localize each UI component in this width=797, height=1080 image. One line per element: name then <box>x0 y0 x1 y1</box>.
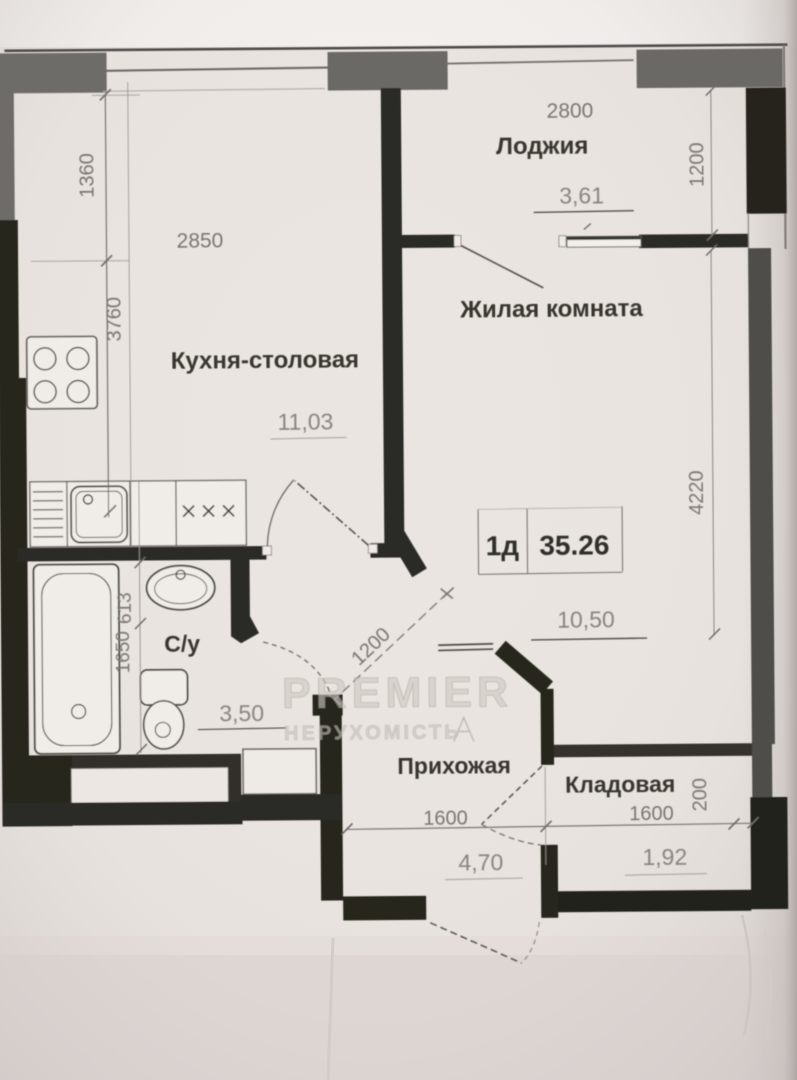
svg-text:2800: 2800 <box>547 99 594 122</box>
svg-text:4,70: 4,70 <box>458 849 503 875</box>
svg-text:11,03: 11,03 <box>277 409 333 435</box>
svg-text:1600: 1600 <box>423 807 468 829</box>
svg-text:1650: 1650 <box>113 631 134 673</box>
svg-text:Лоджия: Лоджия <box>496 133 588 161</box>
svg-text:3,50: 3,50 <box>219 700 264 726</box>
svg-text:Прихожая: Прихожая <box>397 752 511 779</box>
svg-text:10,50: 10,50 <box>557 606 615 632</box>
svg-text:4220: 4220 <box>686 470 708 515</box>
svg-text:1600: 1600 <box>629 803 674 825</box>
svg-text:3760: 3760 <box>103 297 125 342</box>
svg-text:1,92: 1,92 <box>642 844 687 870</box>
svg-text:Кладовая: Кладовая <box>565 771 675 798</box>
svg-text:2850: 2850 <box>177 229 224 252</box>
svg-text:200: 200 <box>689 778 711 812</box>
svg-text:1200: 1200 <box>686 142 708 187</box>
svg-text:PREMIER: PREMIER <box>282 668 513 718</box>
svg-text:613: 613 <box>115 592 136 624</box>
svg-text:НЕРУХОМІСТЬ: НЕРУХОМІСТЬ <box>284 722 462 745</box>
svg-text:С/у: С/у <box>164 631 200 657</box>
svg-text:3,61: 3,61 <box>559 182 604 208</box>
svg-text:1360: 1360 <box>76 153 98 198</box>
svg-text:1д: 1д <box>486 530 520 561</box>
svg-text:Кухня-столовая: Кухня-столовая <box>171 346 360 374</box>
svg-text:Жилая комната: Жилая комната <box>459 295 643 323</box>
svg-text:35.26: 35.26 <box>539 529 609 561</box>
